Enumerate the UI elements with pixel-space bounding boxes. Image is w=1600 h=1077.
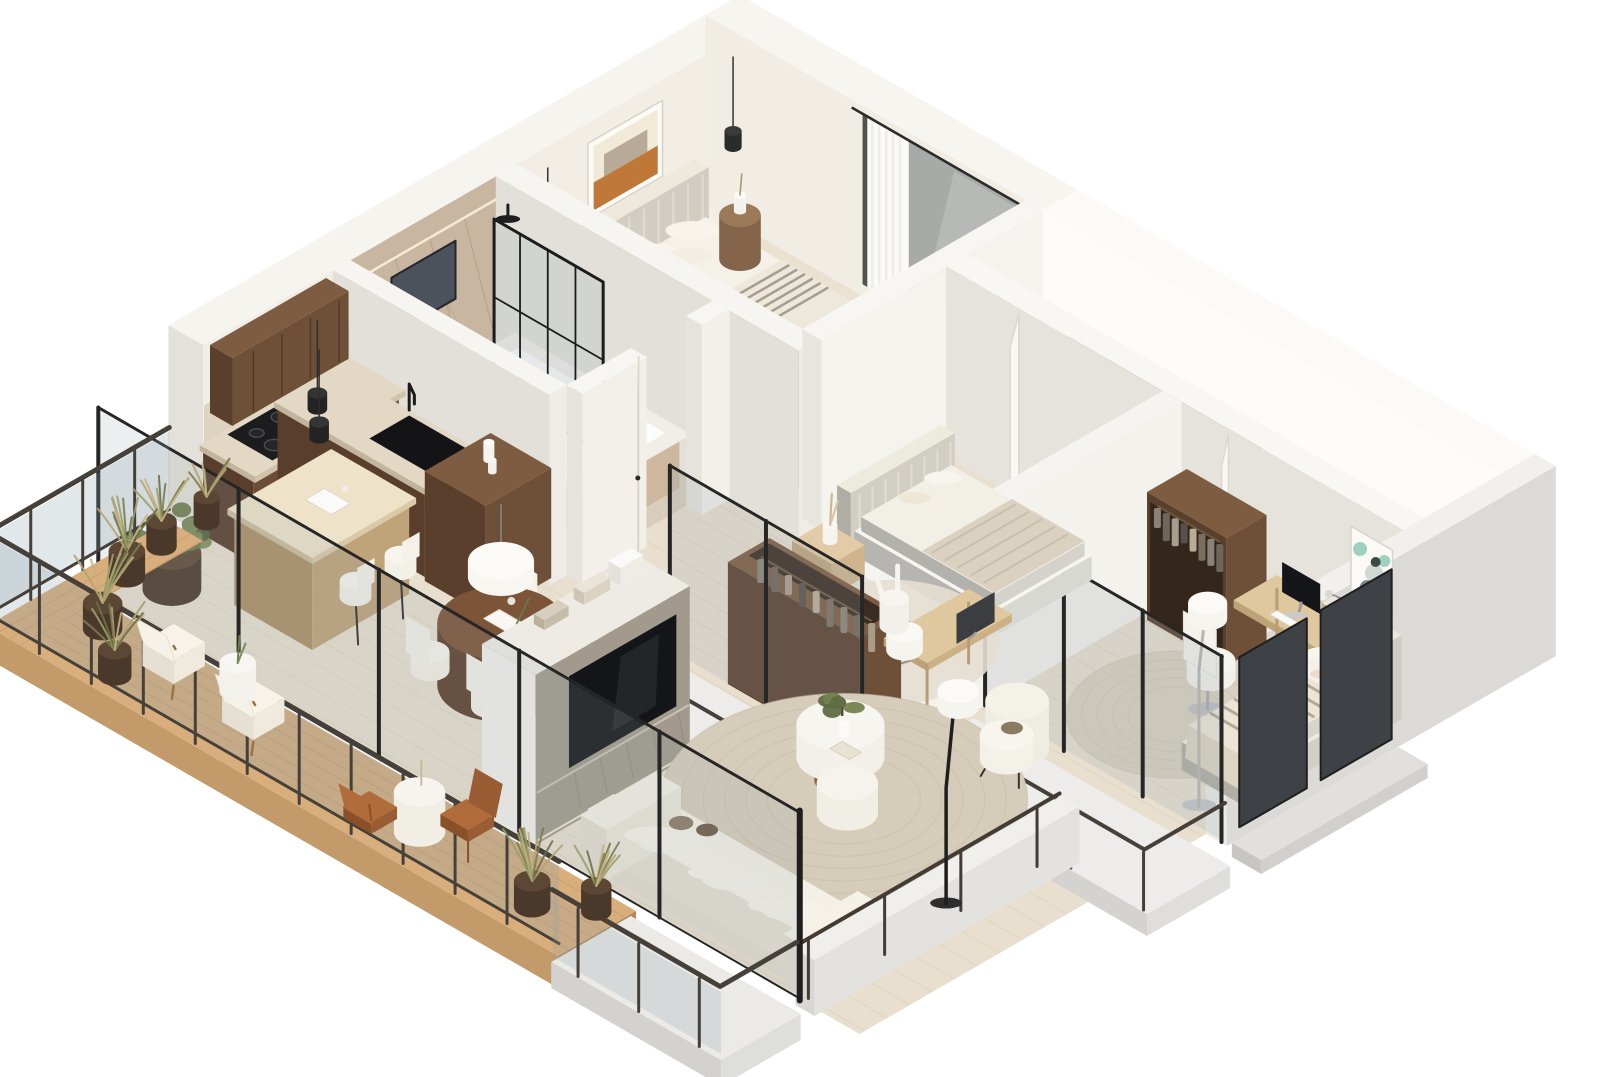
table-plant-leaf xyxy=(843,702,865,713)
wood-chair-frame xyxy=(172,686,174,699)
pendant-lamp-top xyxy=(308,387,328,398)
wardrobe2-clothes-garment xyxy=(1181,523,1188,543)
carafe xyxy=(507,597,515,605)
desk-lamp-head xyxy=(1325,590,1333,598)
wood-chair-frame xyxy=(174,646,176,649)
wall-master-hall-left xyxy=(802,329,821,530)
floorplan-svg xyxy=(0,0,1600,1077)
mushroom-pendant-top xyxy=(468,542,534,580)
wardrobe2-clothes-garment xyxy=(1172,518,1179,546)
armchair-back-top xyxy=(985,683,1049,720)
accent-pillow xyxy=(899,492,931,503)
bathroom-door xyxy=(638,357,639,581)
door-handle xyxy=(635,476,640,481)
pillow xyxy=(665,221,719,240)
wardrobe2-clothes-garment xyxy=(1163,513,1170,541)
ball-pillow xyxy=(1001,722,1023,735)
decor-bottle-top xyxy=(488,458,497,463)
bath-wall-seg-right xyxy=(702,309,730,515)
lamp-shade-top xyxy=(937,679,979,703)
pendant-lamp-top xyxy=(724,126,741,136)
coffee-cup xyxy=(342,486,349,493)
wall-bath-kitchen-right xyxy=(549,385,566,585)
kids-wardrobe-clothes-garment xyxy=(868,623,875,652)
pillow xyxy=(924,471,961,484)
wardrobe2-clothes-garment xyxy=(1216,544,1223,572)
pendant-lamp-top xyxy=(309,416,329,427)
coffee-table-small-top xyxy=(817,765,878,800)
wardrobe2-clothes-garment xyxy=(1154,508,1161,528)
wood-chair-frame xyxy=(253,702,255,705)
art-blob xyxy=(1353,542,1367,556)
candle-top xyxy=(839,720,849,726)
rain-shower-head xyxy=(496,215,520,223)
bath-wall-seg-right xyxy=(582,357,646,584)
burner xyxy=(249,429,264,437)
wardrobe2-clothes-garment xyxy=(1207,539,1214,566)
lamp-shade-top xyxy=(1188,592,1227,615)
table-plant-leaf xyxy=(830,696,846,709)
wardrobe2-clothes-garment xyxy=(1190,529,1197,552)
floorplan-stage xyxy=(0,0,1600,1077)
decor-bottle-top xyxy=(483,439,494,445)
bath-wall-seg-left xyxy=(567,385,583,584)
upper-cabinets-left xyxy=(210,345,233,426)
art-blob xyxy=(1371,557,1381,567)
wardrobe2-clothes-garment xyxy=(1198,534,1205,561)
wood-chair-frame xyxy=(252,742,254,755)
